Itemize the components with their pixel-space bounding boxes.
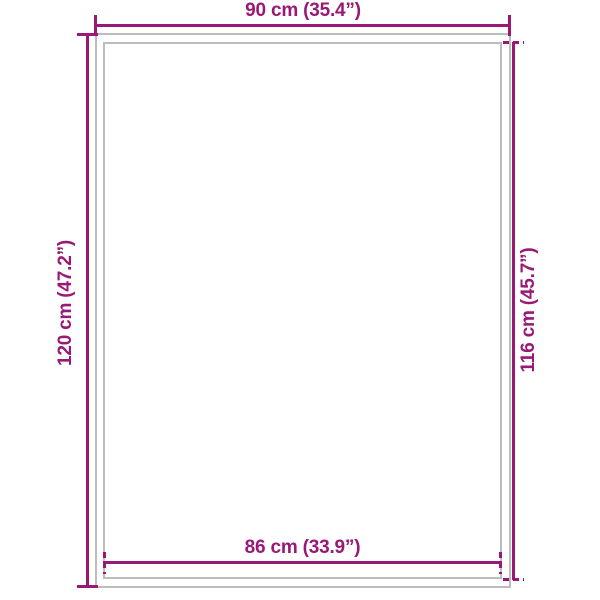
dimension-label-bottom-width: 86 cm (33.9”) bbox=[103, 537, 502, 559]
dimension-dashed-tick-right-top bbox=[503, 41, 524, 44]
dimension-tick-top-right bbox=[508, 15, 511, 36]
dimension-label-left-height: 120 cm (47.2”) bbox=[54, 208, 78, 398]
dimension-line-bottom bbox=[103, 561, 502, 564]
dimension-line-left bbox=[86, 33, 89, 588]
dimension-tick-left-top bbox=[77, 33, 98, 36]
dimension-dashed-tick-bottom-left bbox=[103, 552, 106, 574]
dimension-label-right-height: 116 cm (45.7”) bbox=[517, 215, 541, 405]
dimension-line-top bbox=[95, 24, 511, 27]
dimension-dashed-tick-bottom-right bbox=[499, 552, 502, 574]
dimension-label-top-width: 90 cm (35.4”) bbox=[95, 0, 511, 22]
product-dimension-diagram: 90 cm (35.4”) 120 cm (47.2”) 116 cm (45.… bbox=[0, 0, 600, 600]
dimension-dashed-tick-right-bottom bbox=[503, 578, 524, 581]
dimension-line-right bbox=[512, 42, 515, 580]
dimension-tick-left-bottom bbox=[77, 585, 98, 588]
mat-inner-outline bbox=[103, 42, 502, 579]
